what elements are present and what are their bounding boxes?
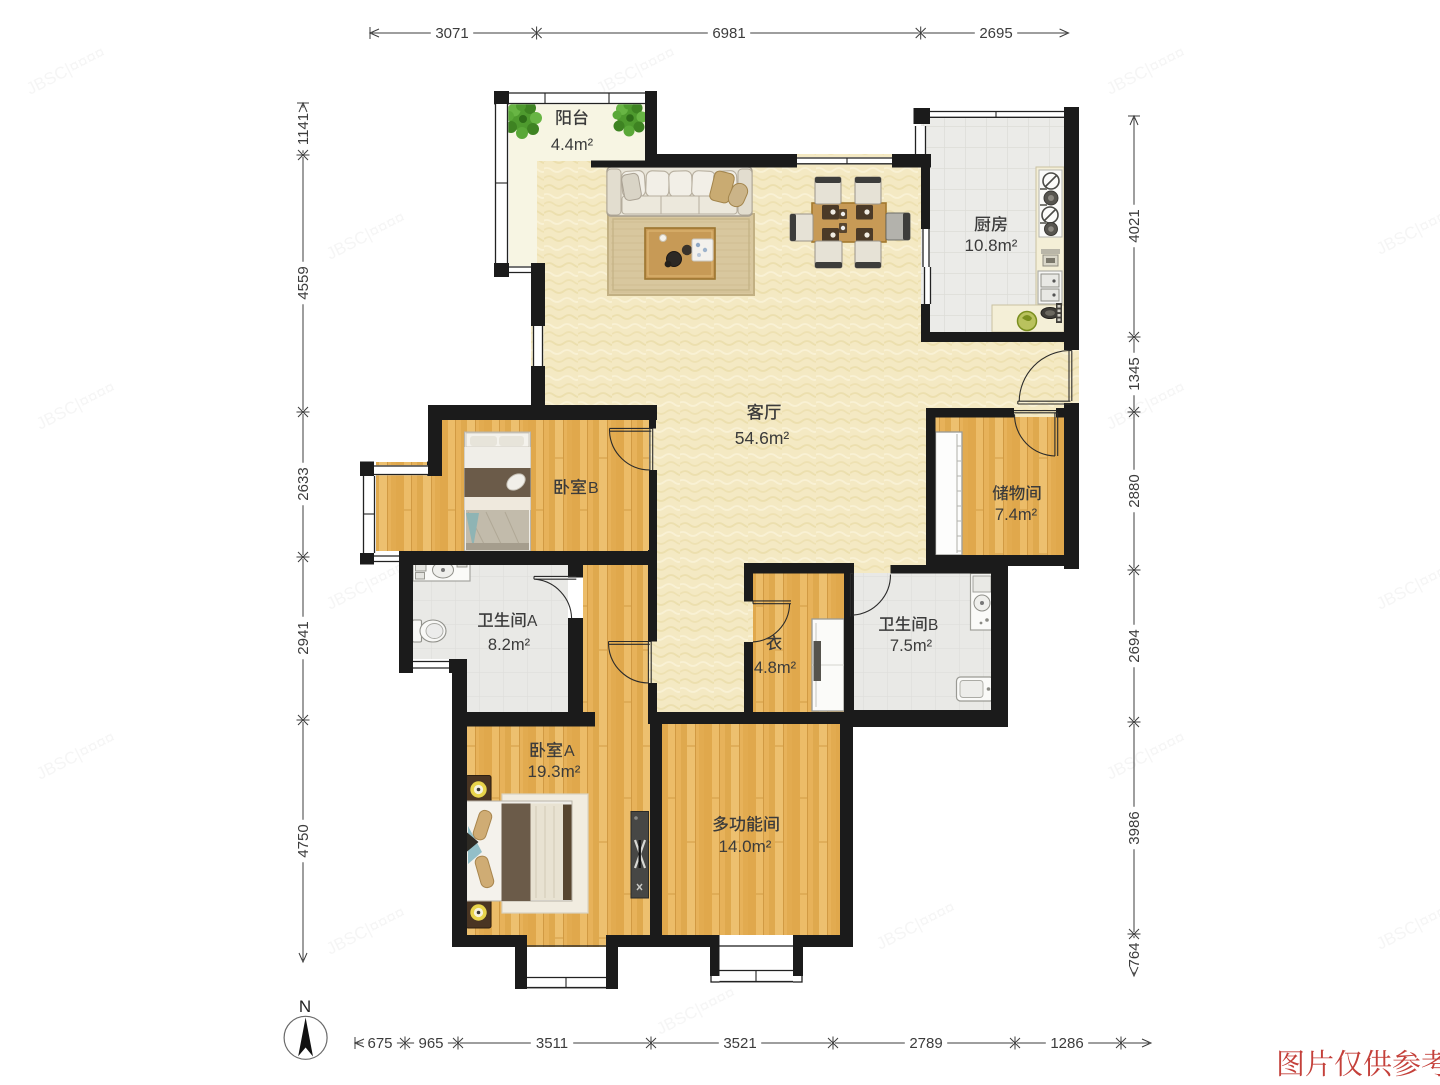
svg-text:10.8m²: 10.8m² xyxy=(965,236,1018,255)
svg-text:3986: 3986 xyxy=(1126,811,1143,844)
svg-text:2694: 2694 xyxy=(1126,629,1143,662)
svg-text:4021: 4021 xyxy=(1126,209,1143,242)
svg-text:2633: 2633 xyxy=(295,467,312,500)
svg-text:965: 965 xyxy=(418,1035,443,1052)
svg-text:B: B xyxy=(928,617,938,634)
svg-text:4.4m²: 4.4m² xyxy=(551,136,594,154)
svg-text:4750: 4750 xyxy=(295,824,312,857)
svg-text:4559: 4559 xyxy=(295,266,312,299)
svg-text:3521: 3521 xyxy=(723,1035,756,1052)
svg-text:1345: 1345 xyxy=(1126,357,1143,390)
svg-text:7.4m²: 7.4m² xyxy=(995,506,1038,524)
svg-text:2880: 2880 xyxy=(1126,474,1143,507)
svg-text:3071: 3071 xyxy=(435,25,468,42)
svg-text:1286: 1286 xyxy=(1050,1035,1083,1052)
svg-text:2695: 2695 xyxy=(979,25,1012,42)
svg-text:3511: 3511 xyxy=(536,1035,568,1052)
svg-text:A: A xyxy=(564,743,575,760)
svg-text:A: A xyxy=(527,613,538,630)
svg-text:N: N xyxy=(299,997,311,1016)
svg-text:4.8m²: 4.8m² xyxy=(754,659,797,677)
svg-text:6981: 6981 xyxy=(712,25,745,42)
svg-text:14.0m²: 14.0m² xyxy=(719,837,772,856)
svg-text:8.2m²: 8.2m² xyxy=(488,636,531,654)
svg-text:2789: 2789 xyxy=(909,1035,942,1052)
svg-text:7.5m²: 7.5m² xyxy=(890,637,933,655)
svg-text:1141: 1141 xyxy=(295,113,312,145)
svg-text:B: B xyxy=(588,480,599,497)
svg-text:2941: 2941 xyxy=(295,621,312,654)
svg-text:19.3m²: 19.3m² xyxy=(528,762,581,781)
svg-text:764: 764 xyxy=(1126,942,1143,967)
svg-text:54.6m²: 54.6m² xyxy=(735,428,790,448)
svg-text:675: 675 xyxy=(367,1035,392,1052)
